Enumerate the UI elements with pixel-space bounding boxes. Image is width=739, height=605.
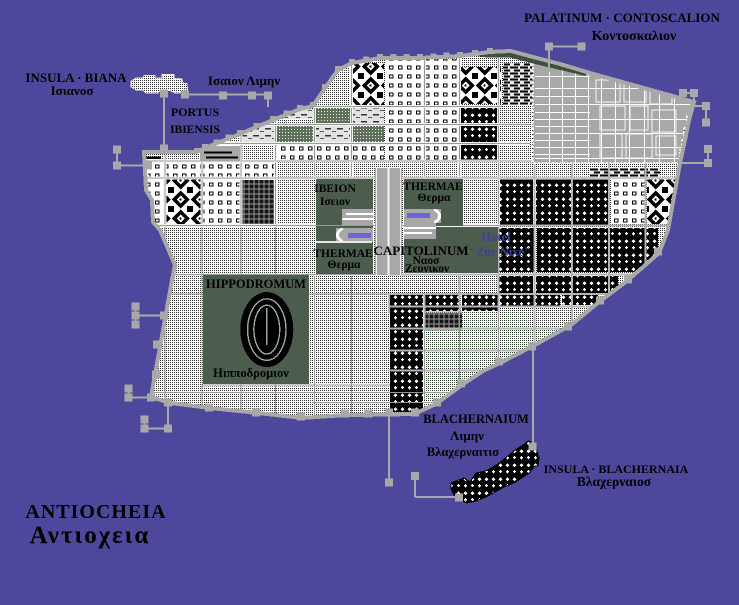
svg-text:Λιμην: Λιμην: [450, 428, 484, 443]
svg-text:IBIENSIS: IBIENSIS: [170, 124, 220, 136]
svg-text:Θερμα: Θερμα: [418, 192, 452, 204]
svg-text:Θερμα: Θερμα: [328, 259, 362, 271]
svg-text:Ζευνικον: Ζευνικον: [405, 263, 449, 275]
svg-text:PALATINUM · CONTOSCALION: PALATINUM · CONTOSCALION: [524, 10, 720, 25]
svg-text:IBEION: IBEION: [314, 183, 356, 195]
svg-text:"Zur Nixe": "Zur Nixe": [469, 245, 531, 259]
svg-text:Βλαχερναιοσ: Βλαχερναιοσ: [577, 474, 652, 489]
svg-text:Ισαιον Λιμην: Ισαιον Λιμην: [208, 73, 280, 88]
svg-text:HIPPODROMUM: HIPPODROMUM: [206, 277, 306, 291]
svg-text:Κοντοσκαλιον: Κοντοσκαλιον: [592, 29, 677, 44]
svg-text:Αντιοχεια: Αντιοχεια: [30, 522, 151, 549]
svg-text:Βλαχερναιτισ: Βλαχερναιτισ: [427, 445, 499, 459]
svg-text:ANTIOCHEIA: ANTIOCHEIA: [25, 501, 166, 523]
svg-text:BLACHERNAIUM: BLACHERNAIUM: [423, 412, 529, 426]
svg-text:Hotel: Hotel: [481, 230, 511, 244]
svg-text:Ισιανοσ: Ισιανοσ: [51, 83, 94, 98]
svg-text:PORTUS: PORTUS: [171, 105, 220, 119]
svg-text:Ηιπποδρομιον: Ηιπποδρομιον: [213, 366, 289, 380]
svg-text:Ισειον: Ισειον: [320, 196, 350, 208]
